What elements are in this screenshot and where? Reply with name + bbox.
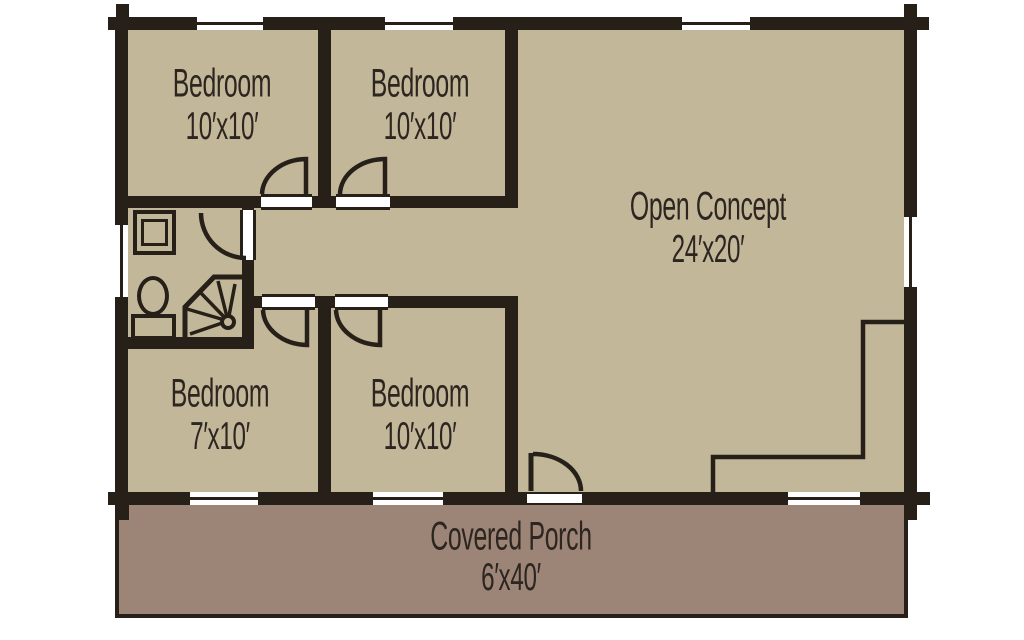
window-pane-line bbox=[909, 217, 912, 287]
sink-basin-icon bbox=[141, 219, 168, 246]
front-door-threshold bbox=[527, 492, 582, 505]
wall-bedrooms-bottom-divider bbox=[318, 308, 331, 492]
room-dims-bedroom1: 10′x10′ bbox=[186, 105, 259, 149]
log-end-top-left-icon bbox=[108, 17, 116, 30]
log-end-top-right-icon bbox=[917, 17, 929, 30]
room-label-bedroom2: Bedroom bbox=[371, 62, 469, 107]
window-pane-line bbox=[190, 497, 258, 500]
room-dims-open-concept: 24′x20′ bbox=[672, 228, 745, 272]
door-leaf-bathroom bbox=[240, 210, 256, 260]
wall-hall-bottom bbox=[388, 296, 518, 308]
window-pane-line bbox=[197, 22, 263, 25]
window bbox=[197, 17, 263, 30]
door-leaf-bedroom2 bbox=[336, 194, 390, 210]
window-pane-line bbox=[120, 225, 123, 297]
window bbox=[788, 492, 860, 505]
room-dims-bedroom4: 10′x10′ bbox=[384, 415, 457, 459]
log-end-bottom-right-icon bbox=[917, 492, 930, 505]
window-pane-line bbox=[682, 22, 750, 25]
log-end-bottom-right-icon bbox=[904, 505, 917, 520]
window bbox=[385, 17, 453, 30]
window-pane-line bbox=[385, 22, 453, 25]
window-pane-line bbox=[373, 497, 443, 500]
wall-hall-top bbox=[390, 196, 518, 208]
log-end-bottom-left-icon bbox=[116, 505, 129, 520]
wall-bedroom4-openconcept bbox=[505, 296, 518, 492]
door-leaf-bedroom3 bbox=[262, 294, 315, 310]
room-label-bedroom1: Bedroom bbox=[173, 62, 271, 107]
window bbox=[682, 17, 750, 30]
wall-bedroom2-openconcept bbox=[505, 30, 518, 208]
wall-bedrooms-top-divider bbox=[318, 30, 331, 196]
log-end-top-left-icon bbox=[116, 4, 129, 17]
window bbox=[904, 217, 917, 287]
window bbox=[190, 492, 258, 505]
toilet-bowl-icon bbox=[137, 276, 169, 316]
room-label-open-concept: Open Concept bbox=[630, 185, 786, 230]
window bbox=[115, 225, 128, 297]
room-label-bedroom4: Bedroom bbox=[371, 372, 469, 417]
room-dims-covered-porch: 6′x40′ bbox=[481, 556, 541, 600]
log-end-bottom-left-icon bbox=[108, 492, 116, 505]
room-dims-bedroom2: 10′x10′ bbox=[384, 105, 457, 149]
floor-plan: Bedroom 10′x10′ Bedroom 10′x10′ Open Con… bbox=[0, 0, 1024, 640]
window bbox=[373, 492, 443, 505]
toilet-tank-icon bbox=[131, 314, 176, 340]
room-label-covered-porch: Covered Porch bbox=[430, 515, 591, 560]
wall-hall-bottom bbox=[242, 296, 262, 308]
wall-hall-top bbox=[128, 196, 261, 208]
room-dims-bedroom3: 7′x10′ bbox=[190, 415, 250, 459]
window-pane-line bbox=[788, 497, 860, 500]
log-end-top-right-icon bbox=[904, 4, 917, 17]
wall-hall-bottom bbox=[315, 296, 335, 308]
room-label-bedroom3: Bedroom bbox=[171, 372, 269, 417]
wall-hall-top bbox=[312, 196, 336, 208]
door-leaf-bedroom1 bbox=[261, 194, 312, 210]
door-leaf-bedroom4 bbox=[335, 294, 388, 310]
